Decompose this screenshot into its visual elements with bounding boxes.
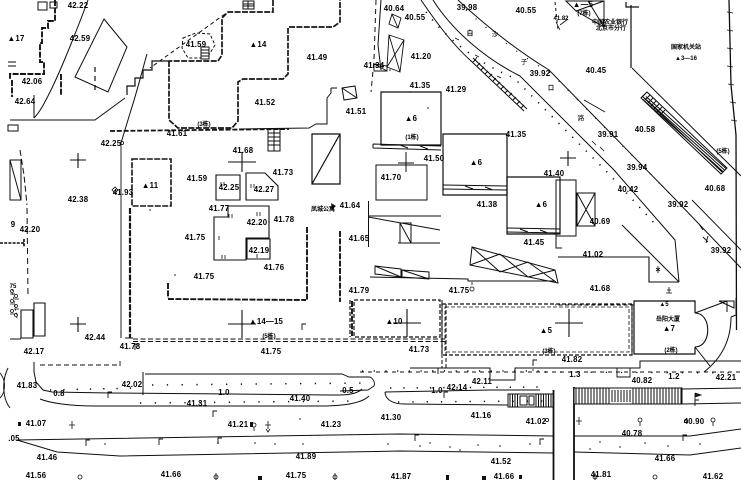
svg-text:42.25: 42.25 (101, 139, 122, 148)
svg-text:▲3—16: ▲3—16 (675, 56, 698, 62)
svg-text:▲11: ▲11 (142, 181, 159, 190)
svg-text:39.94: 39.94 (627, 163, 648, 172)
svg-text:41.68: 41.68 (590, 284, 611, 293)
svg-text:1.3: 1.3 (569, 370, 581, 379)
svg-text:41.59: 41.59 (186, 40, 207, 49)
svg-text:41.35: 41.35 (506, 130, 527, 139)
svg-text:41.40: 41.40 (290, 394, 311, 403)
svg-text:40.45: 40.45 (586, 66, 607, 75)
svg-text:41.78: 41.78 (274, 215, 295, 224)
svg-text:41.79: 41.79 (349, 286, 370, 295)
svg-text:41.62: 41.62 (703, 472, 724, 480)
svg-text:40.82: 40.82 (632, 376, 653, 385)
svg-text:(3栋): (3栋) (197, 120, 210, 128)
svg-text:39.92: 39.92 (711, 246, 732, 255)
svg-text:白: 白 (467, 28, 474, 37)
svg-text:41.56: 41.56 (26, 471, 47, 480)
svg-text:75: 75 (10, 284, 17, 290)
svg-text:41.61: 41.61 (167, 129, 188, 138)
svg-text:▲6: ▲6 (535, 200, 548, 209)
svg-text:▲10: ▲10 (386, 317, 403, 326)
svg-text:41.66: 41.66 (494, 472, 515, 480)
svg-text:41.50: 41.50 (424, 154, 445, 163)
svg-text:39.92: 39.92 (530, 69, 551, 78)
svg-text:42.22: 42.22 (68, 1, 89, 10)
svg-text:9: 9 (11, 220, 16, 229)
svg-text:41.75: 41.75 (185, 233, 206, 242)
svg-text:(3栋): (3栋) (542, 347, 555, 355)
svg-text:(5栋): (5栋) (716, 147, 729, 155)
svg-text:42.19: 42.19 (249, 246, 270, 255)
svg-text:42.21: 42.21 (716, 373, 737, 382)
svg-text:42.20: 42.20 (247, 218, 268, 227)
svg-text:(1栋): (1栋) (405, 133, 418, 141)
svg-text:▲6: ▲6 (405, 114, 418, 123)
svg-text:国家机关站: 国家机关站 (671, 43, 701, 51)
svg-text:41.75: 41.75 (286, 471, 307, 480)
svg-text:42.06: 42.06 (22, 77, 43, 86)
svg-text:42.17: 42.17 (24, 347, 45, 356)
svg-text:41.46: 41.46 (37, 453, 58, 462)
svg-text:41.38: 41.38 (477, 200, 498, 209)
svg-text:42.44: 42.44 (85, 333, 106, 342)
svg-text:41.78: 41.78 (120, 342, 141, 351)
svg-text:42.59: 42.59 (70, 34, 91, 43)
svg-text:.05: .05 (8, 434, 20, 443)
svg-text:41.65: 41.65 (349, 234, 370, 243)
svg-text:子: 子 (521, 58, 528, 66)
svg-text:41.64: 41.64 (340, 201, 361, 210)
svg-text:39.92: 39.92 (668, 200, 689, 209)
svg-text:40.42: 40.42 (618, 185, 639, 194)
svg-text:41.02: 41.02 (583, 250, 604, 259)
svg-text:▲5: ▲5 (540, 326, 553, 335)
svg-text:41.20: 41.20 (411, 52, 432, 61)
svg-text:40.55: 40.55 (405, 13, 426, 22)
svg-text:41.75: 41.75 (261, 347, 282, 356)
svg-text:0.8: 0.8 (53, 389, 65, 398)
svg-text:口: 口 (548, 85, 554, 92)
svg-text:41.82: 41.82 (553, 16, 569, 22)
svg-text:1.0: 1.0 (431, 386, 443, 395)
svg-text:40.78: 40.78 (622, 429, 643, 438)
svg-text:41.83: 41.83 (17, 381, 38, 390)
svg-text:41.75: 41.75 (449, 286, 470, 295)
svg-text:41.76: 41.76 (264, 263, 285, 272)
svg-text:▲5: ▲5 (659, 302, 669, 308)
svg-text:41.68: 41.68 (233, 146, 254, 155)
svg-text:▲6: ▲6 (470, 158, 483, 167)
svg-text:42.02: 42.02 (122, 380, 143, 389)
svg-text:41.73: 41.73 (273, 168, 294, 177)
svg-text:41.52: 41.52 (491, 457, 512, 466)
svg-text:40.55: 40.55 (516, 6, 537, 15)
svg-text:40.90: 40.90 (684, 417, 705, 426)
svg-text:42.11: 42.11 (472, 377, 493, 386)
svg-text:(7栋): (7栋) (577, 9, 590, 17)
svg-text:41.70: 41.70 (381, 173, 402, 182)
svg-text:41.77: 41.77 (209, 204, 230, 213)
svg-text:1.0: 1.0 (218, 388, 230, 397)
svg-text:41.81: 41.81 (591, 470, 612, 479)
svg-text:41.52: 41.52 (255, 98, 276, 107)
svg-text:41.45: 41.45 (524, 238, 545, 247)
svg-text:41.66: 41.66 (161, 470, 182, 479)
svg-text:40.69: 40.69 (590, 217, 611, 226)
svg-text:41.30: 41.30 (381, 413, 402, 422)
svg-text:39.91: 39.91 (598, 130, 619, 139)
svg-text:41.02: 41.02 (526, 417, 547, 426)
svg-text:40.64: 40.64 (384, 4, 405, 13)
svg-text:41.23: 41.23 (321, 420, 342, 429)
svg-text:路: 路 (578, 113, 585, 122)
svg-text:▲7: ▲7 (663, 324, 675, 333)
svg-text:39.98: 39.98 (457, 3, 478, 12)
svg-text:41.29: 41.29 (446, 85, 467, 94)
svg-text:42.25: 42.25 (219, 183, 240, 192)
svg-text:中国农业银行: 中国农业银行 (592, 18, 628, 26)
svg-text:41.49: 41.49 (307, 53, 328, 62)
svg-text:40.68: 40.68 (705, 184, 726, 193)
svg-text:42.38: 42.38 (68, 195, 89, 204)
svg-text:▲14—15: ▲14—15 (249, 317, 284, 326)
svg-text:41.89: 41.89 (296, 452, 317, 461)
svg-text:(5栋): (5栋) (262, 332, 275, 340)
svg-text:▲—5: ▲—5 (573, 0, 594, 9)
svg-text:41.31: 41.31 (187, 399, 208, 408)
svg-text:41.87: 41.87 (391, 472, 412, 480)
svg-text:凤城公寓: 凤城公寓 (311, 205, 335, 213)
svg-text:42.64: 42.64 (15, 97, 36, 106)
svg-text:42.20: 42.20 (20, 225, 41, 234)
svg-text:北京市分行: 北京市分行 (596, 24, 626, 32)
svg-text:41.59: 41.59 (187, 174, 208, 183)
svg-text:41.93: 41.93 (113, 188, 134, 197)
svg-text:41.40: 41.40 (544, 169, 565, 178)
svg-text:41.66: 41.66 (655, 454, 676, 463)
svg-text:▲14: ▲14 (250, 40, 267, 49)
svg-text:0.5: 0.5 (342, 386, 354, 395)
svg-text:40.58: 40.58 (635, 125, 656, 134)
svg-text:41.07: 41.07 (26, 419, 47, 428)
svg-text:41.73: 41.73 (409, 345, 430, 354)
svg-text:41.35: 41.35 (410, 81, 431, 90)
svg-text:41.16: 41.16 (471, 411, 492, 420)
svg-text:1.2: 1.2 (668, 372, 680, 381)
svg-text:41.51: 41.51 (346, 107, 367, 116)
svg-text:42.14: 42.14 (447, 383, 468, 392)
svg-text:岳阳大厦: 岳阳大厦 (656, 315, 681, 323)
svg-text:(2栋): (2栋) (664, 346, 677, 354)
svg-text:41.75: 41.75 (194, 272, 215, 281)
svg-text:42.27: 42.27 (254, 185, 275, 194)
svg-text:沙: 沙 (492, 31, 499, 38)
svg-text:▲17: ▲17 (8, 34, 25, 43)
svg-text:41.82: 41.82 (562, 355, 583, 364)
svg-text:41.21: 41.21 (228, 420, 249, 429)
svg-text:41.34: 41.34 (364, 61, 385, 70)
